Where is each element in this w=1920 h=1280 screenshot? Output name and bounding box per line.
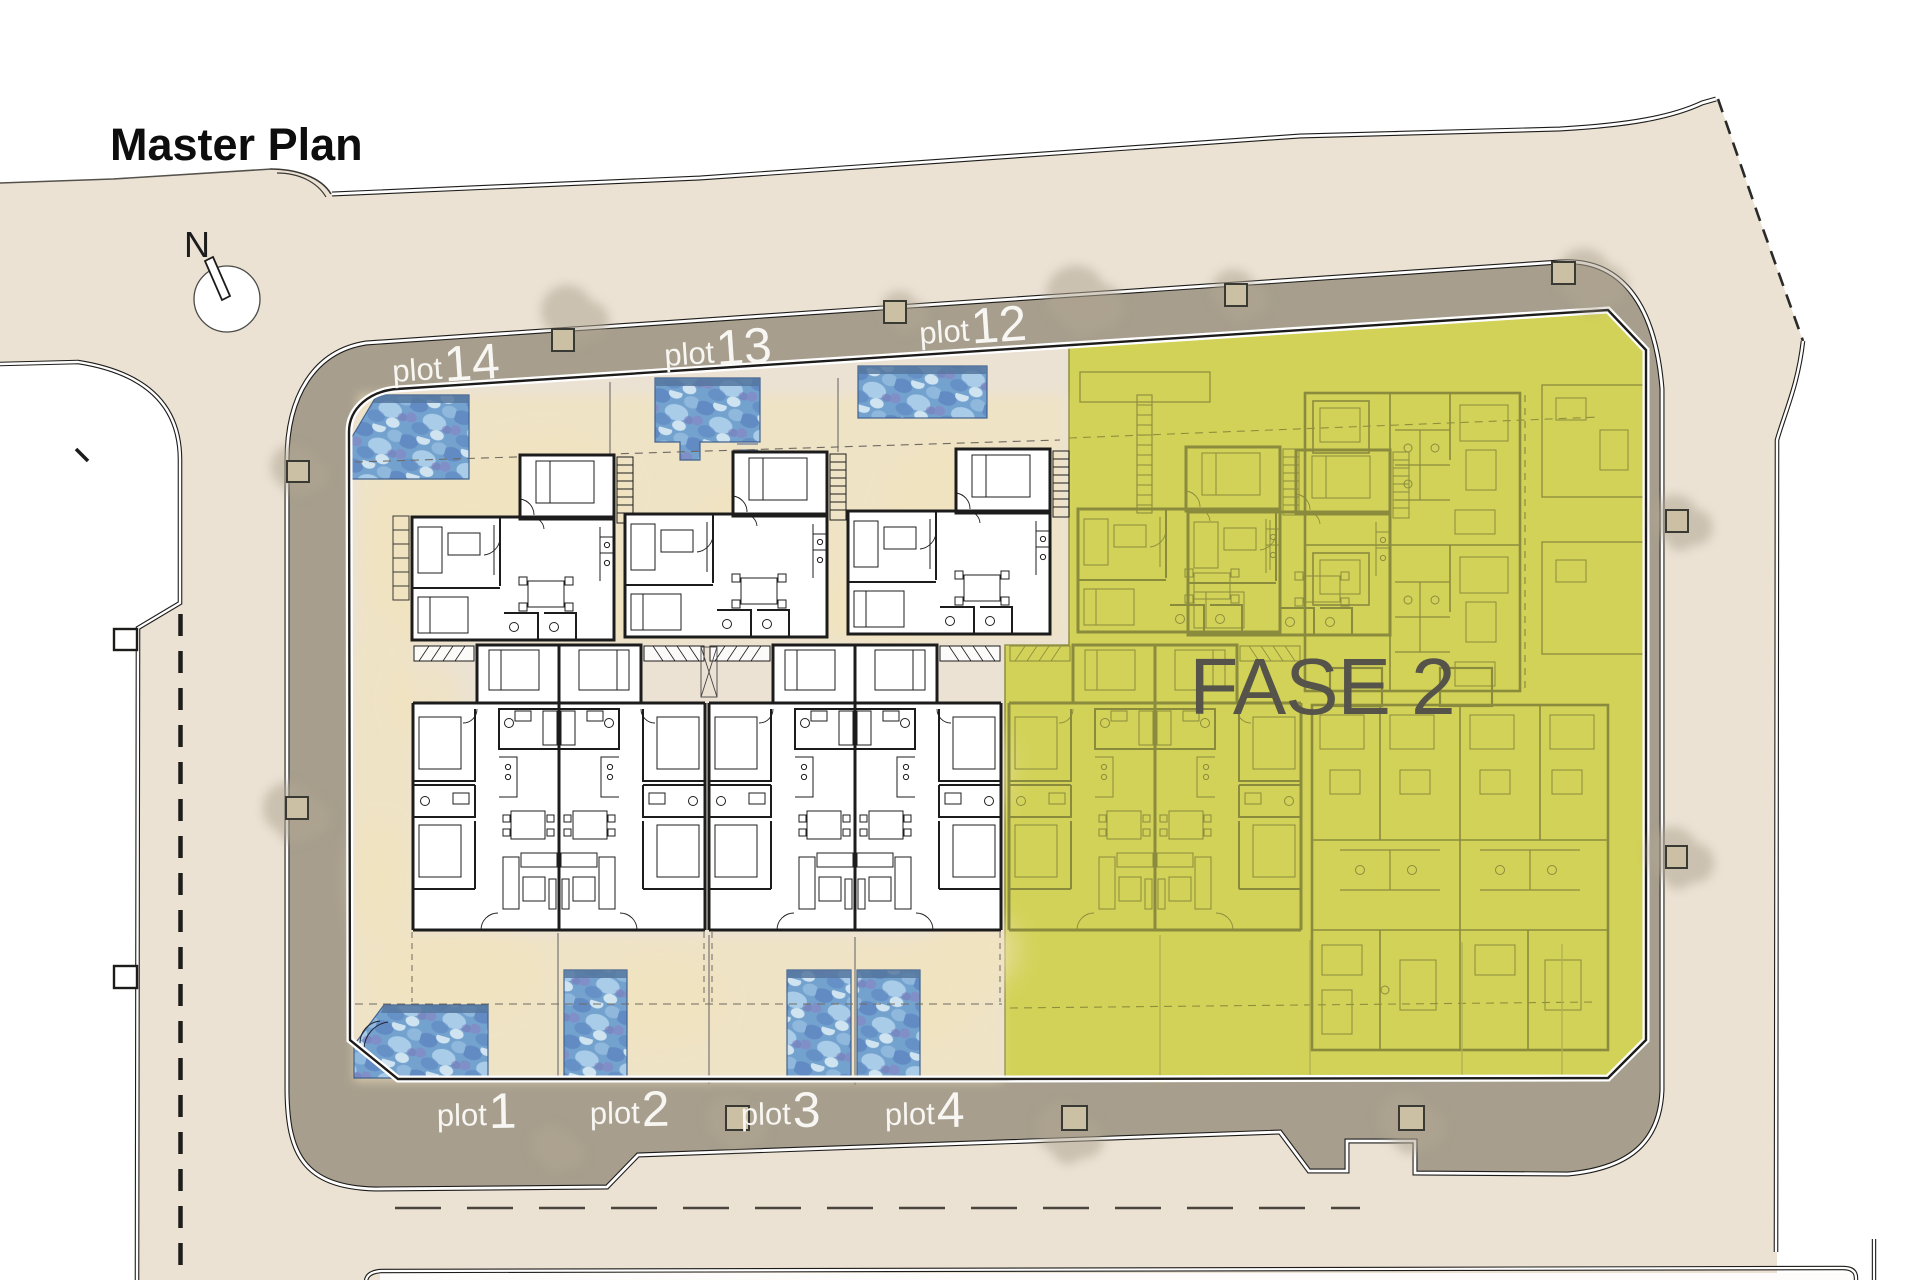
svg-text:N: N (184, 224, 210, 265)
svg-text:plot: plot (437, 1097, 488, 1133)
svg-text:Master Plan: Master Plan (110, 119, 363, 170)
svg-text:12: 12 (969, 295, 1028, 355)
svg-text:FASE 2: FASE 2 (1189, 642, 1454, 731)
svg-text:plot: plot (391, 351, 444, 389)
svg-text:plot: plot (741, 1096, 792, 1132)
svg-text:3: 3 (792, 1082, 821, 1138)
svg-text:14: 14 (442, 333, 501, 393)
svg-text:1: 1 (488, 1083, 517, 1139)
svg-text:plot: plot (918, 313, 971, 351)
svg-text:13: 13 (714, 317, 773, 377)
svg-text:2: 2 (641, 1081, 670, 1137)
svg-text:plot: plot (590, 1095, 641, 1131)
svg-text:plot: plot (663, 335, 716, 373)
svg-text:plot: plot (885, 1096, 936, 1132)
svg-text:4: 4 (936, 1082, 965, 1138)
